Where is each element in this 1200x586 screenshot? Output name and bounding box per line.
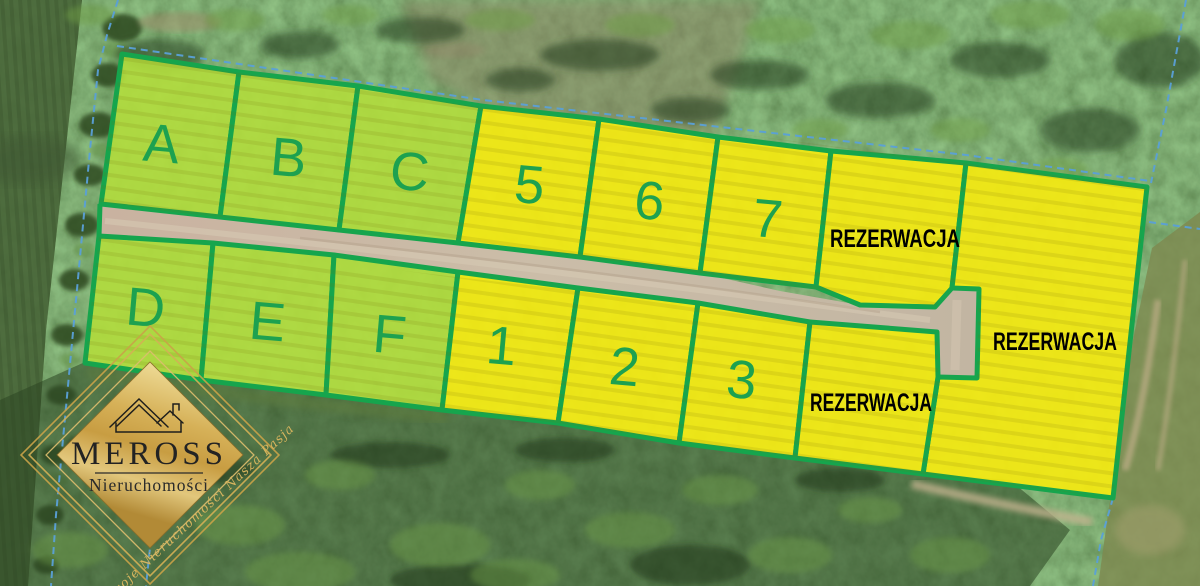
- road-end-border: [99, 204, 100, 236]
- plot-label-7: 7: [750, 188, 785, 250]
- plot-label-E: E: [247, 291, 288, 354]
- plot-label-3: 3: [724, 349, 759, 411]
- rezerwacja-label-right: REZERWACJA: [993, 328, 1117, 356]
- logo-subtitle: Nieruchomości: [89, 475, 209, 495]
- rezerwacja-label-bottom: REZERWACJA: [810, 389, 932, 417]
- plot-label-5: 5: [512, 154, 547, 216]
- plot-label-A: A: [141, 113, 182, 176]
- plot-label-2: 2: [607, 336, 642, 398]
- plot-map-canvas: A B C 5 6 7 D E F 1 2 3 REZERWACJA REZER…: [0, 0, 1200, 586]
- logo-name: MEROSS: [71, 436, 227, 472]
- plot-label-B: B: [268, 127, 309, 190]
- plot-label-1: 1: [484, 315, 519, 377]
- plot-label-6: 6: [632, 170, 667, 232]
- plot-label-C: C: [388, 140, 432, 203]
- aerial-plot-map: A B C 5 6 7 D E F 1 2 3 REZERWACJA REZER…: [0, 0, 1200, 586]
- rezerwacja-label-top: REZERWACJA: [830, 225, 960, 253]
- plot-label-F: F: [371, 304, 409, 367]
